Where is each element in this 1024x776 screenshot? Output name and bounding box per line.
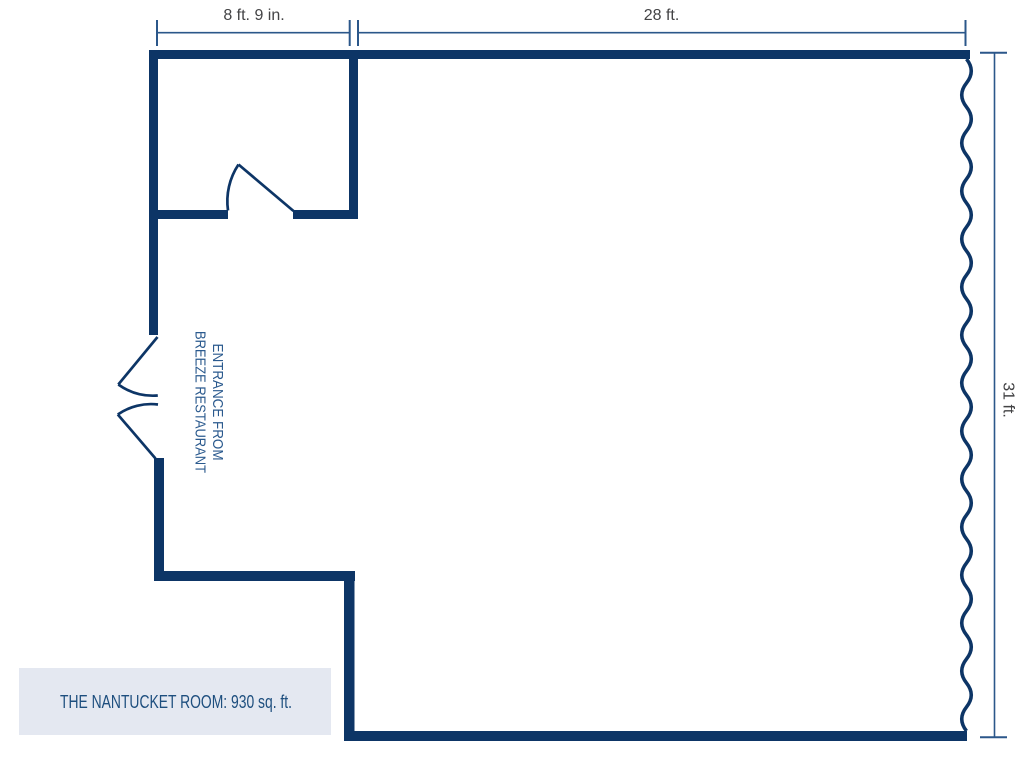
- svg-text:28 ft.: 28 ft.: [644, 7, 680, 24]
- svg-text:8 ft. 9 in.: 8 ft. 9 in.: [223, 7, 284, 24]
- svg-text:THE NANTUCKET ROOM: 930 sq. ft: THE NANTUCKET ROOM: 930 sq. ft.: [60, 691, 292, 712]
- svg-text:31 ft.: 31 ft.: [1000, 382, 1017, 418]
- svg-text:BREEZE RESTAURANT: BREEZE RESTAURANT: [192, 331, 208, 473]
- svg-text:ENTRANCE FROM: ENTRANCE FROM: [209, 344, 225, 461]
